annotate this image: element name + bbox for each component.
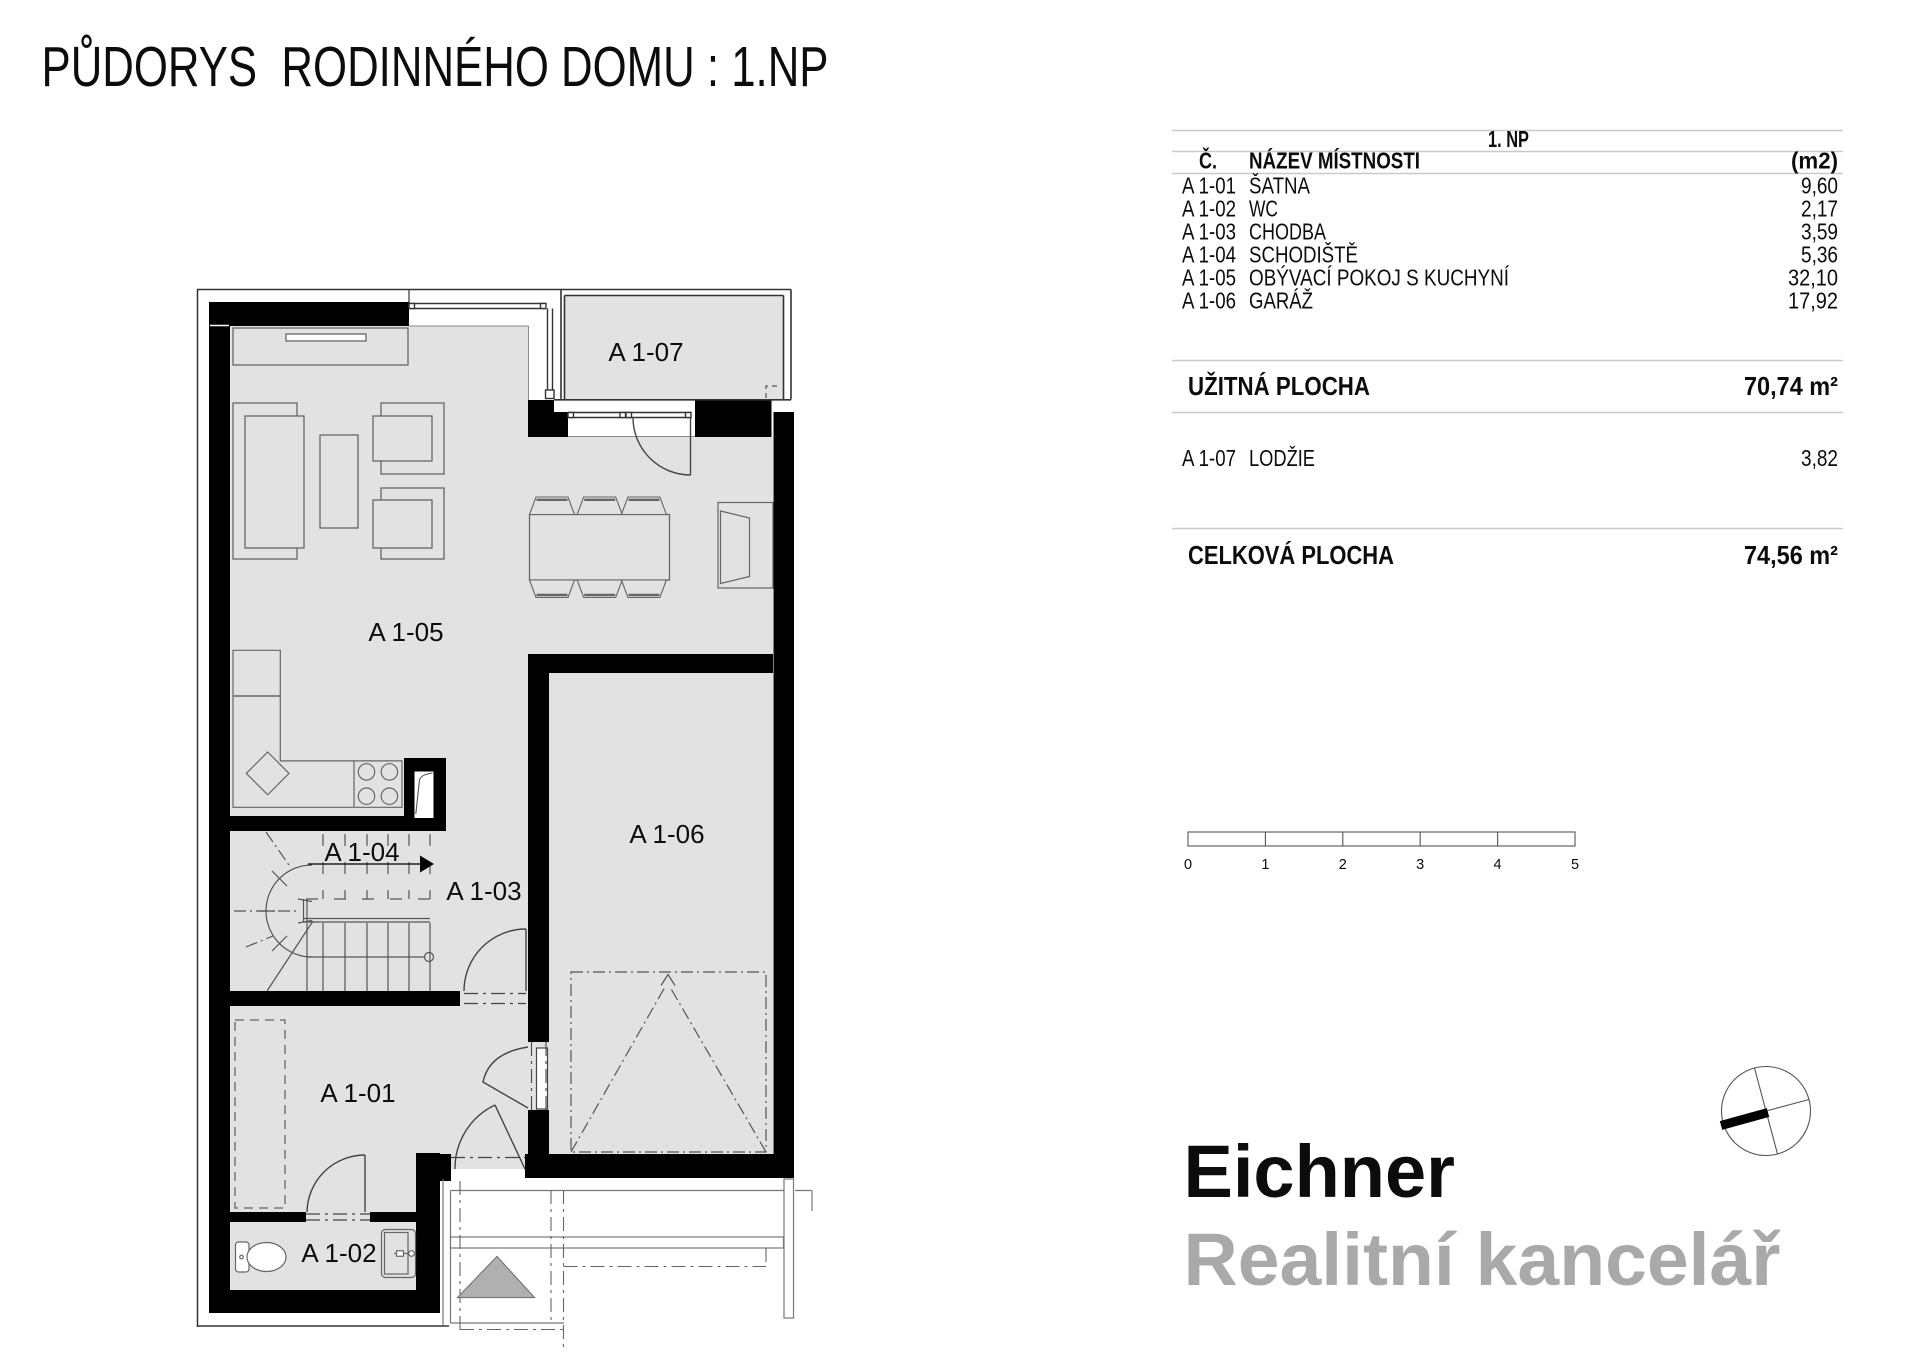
svg-text:PŮDORYS RODINNÉHO DOMU : 1.NP: PŮDORYS RODINNÉHO DOMU : 1.NP <box>42 33 829 99</box>
svg-text:Eichner: Eichner <box>1184 1130 1455 1213</box>
svg-text:A 1-04: A 1-04 <box>324 837 399 867</box>
svg-text:A 1-03: A 1-03 <box>446 876 521 906</box>
svg-text:NÁZEV MÍSTNOSTI: NÁZEV MÍSTNOSTI <box>1249 147 1420 174</box>
svg-text:A 1-07: A 1-07 <box>1182 445 1236 471</box>
svg-text:UŽITNÁ PLOCHA: UŽITNÁ PLOCHA <box>1188 371 1370 401</box>
svg-text:1. NP: 1. NP <box>1488 126 1529 152</box>
svg-text:LODŽIE: LODŽIE <box>1249 445 1315 471</box>
svg-text:GARÁŽ: GARÁŽ <box>1249 288 1313 314</box>
svg-text:1: 1 <box>1261 857 1269 873</box>
svg-text:ŠATNA: ŠATNA <box>1249 172 1311 199</box>
svg-text:A 1-05: A 1-05 <box>368 617 443 647</box>
svg-text:A 1-01: A 1-01 <box>320 1078 395 1108</box>
svg-text:(m2): (m2) <box>1791 148 1838 174</box>
svg-text:A 1-02: A 1-02 <box>301 1238 376 1268</box>
svg-text:17,92: 17,92 <box>1788 288 1838 314</box>
svg-text:74,56 m²: 74,56 m² <box>1744 540 1838 570</box>
svg-text:0: 0 <box>1184 857 1192 873</box>
svg-text:70,74 m²: 70,74 m² <box>1744 371 1838 401</box>
svg-text:A 1-07: A 1-07 <box>608 337 683 367</box>
svg-text:3: 3 <box>1416 857 1424 873</box>
svg-text:A 1-06: A 1-06 <box>1182 288 1236 314</box>
svg-text:3,82: 3,82 <box>1801 445 1838 471</box>
svg-text:5: 5 <box>1571 857 1579 873</box>
svg-text:A 1-06: A 1-06 <box>629 819 704 849</box>
svg-text:Č.: Č. <box>1199 147 1217 174</box>
svg-text:4: 4 <box>1494 857 1502 873</box>
svg-text:Realitní kancelář: Realitní kancelář <box>1184 1218 1781 1301</box>
svg-text:2: 2 <box>1339 857 1347 873</box>
svg-text:SCHODIŠTĚ: SCHODIŠTĚ <box>1249 241 1358 268</box>
svg-text:CELKOVÁ PLOCHA: CELKOVÁ PLOCHA <box>1188 540 1394 570</box>
